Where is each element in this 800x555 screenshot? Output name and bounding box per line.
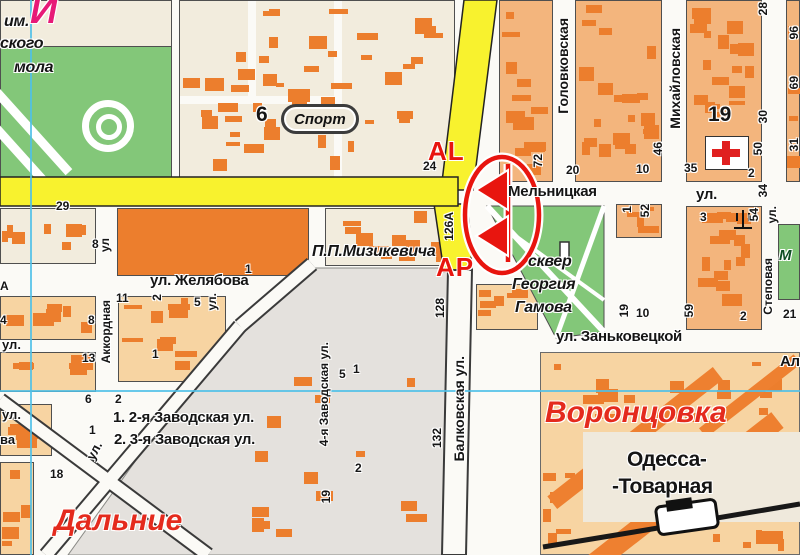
park-skver-line-3: Гамова — [515, 300, 572, 316]
house-number: 128 — [434, 298, 446, 318]
house-number: 1 — [621, 206, 633, 213]
street-melnitskaya: Мельницкая — [508, 184, 597, 199]
street-ul-small: ул. — [2, 408, 21, 421]
house-number: 31 — [788, 138, 800, 151]
house-number: 50 — [752, 142, 764, 155]
block-number-19: 19 — [708, 104, 731, 125]
park-skver-line-1: сквер — [528, 254, 571, 270]
house-number: 19 — [618, 304, 630, 317]
house-number: 11 — [116, 292, 129, 304]
park-name-line-1: им. — [4, 14, 29, 30]
street-al-cut: Ал — [780, 354, 800, 369]
marker-label-ar: АР — [436, 254, 474, 280]
street-zhelyabova: ул. Желябова — [150, 273, 248, 288]
street-mikhailovskaya: Михайловская — [668, 28, 682, 129]
house-number: 21 — [783, 308, 796, 320]
house-number: 46 — [652, 142, 664, 155]
park-name-line-2: ского — [0, 36, 43, 52]
street-akkordnaya: Аккордная — [100, 300, 112, 363]
house-number: 72 — [532, 154, 544, 167]
house-number: 5 — [194, 296, 201, 308]
house-number: 54 — [748, 208, 760, 221]
house-number: 30 — [757, 110, 769, 123]
street-golovkovskaya: Головковская — [556, 18, 570, 114]
district-letter: И — [30, 0, 57, 30]
house-number: 52 — [639, 204, 651, 217]
station-name-line-1: Одесса- — [627, 449, 706, 470]
house-number: 2 — [355, 462, 362, 474]
house-number: 1 — [89, 424, 96, 436]
stadium-number: 6 — [256, 104, 268, 125]
house-number: 96 — [788, 26, 800, 39]
house-number: 2 — [740, 310, 747, 322]
map-canvas: Спорт AL АР им.скогомолаИ6ГоловковскаяМи… — [0, 0, 800, 555]
house-number: 4 — [0, 314, 7, 326]
house-number: 34 — [757, 184, 769, 197]
house-number: 3 — [700, 211, 707, 223]
house-number: 13 — [82, 352, 95, 364]
street-balkovskaya: Балковская ул. — [452, 356, 466, 461]
street-ul-small: ул. — [206, 293, 218, 310]
house-number: 10 — [636, 163, 649, 175]
house-number: 2 — [748, 167, 755, 179]
house-number: 1 — [353, 363, 360, 375]
park-name-line-3: мола — [14, 60, 53, 76]
house-number: 2 — [151, 294, 163, 301]
house-number: 18 — [50, 468, 63, 480]
house-number: 8 — [88, 314, 95, 326]
park-skver-line-2: Георгия — [512, 277, 575, 293]
street-ul-small: ул. — [766, 206, 778, 223]
landmark-mizikevicha: П.П.Мизикевича — [312, 244, 435, 260]
house-number: 35 — [684, 162, 697, 174]
house-number: 29 — [56, 200, 69, 212]
house-number: 69 — [788, 76, 800, 89]
legend-line-2: 2. 3-я Заводская ул. — [114, 432, 255, 447]
street-edge-va: ва — [0, 433, 15, 446]
house-number: 2 — [115, 393, 122, 405]
house-number: 24 — [423, 160, 436, 172]
labels-layer: AL АР им.скогомолаИ6ГоловковскаяМихайлов… — [0, 0, 800, 555]
street-ul-small: ул — [99, 238, 111, 252]
street-edge-a: А — [0, 280, 9, 292]
house-number: 28 — [757, 2, 769, 15]
house-number: 6 — [85, 393, 92, 405]
street-melnitskaya-ul: ул. — [696, 187, 717, 202]
house-number: 20 — [566, 164, 579, 176]
street-4-zavodskaya: 4-я Заводская ул. — [318, 342, 330, 446]
park-letter-m: М — [779, 248, 792, 263]
house-number: 132 — [431, 428, 443, 448]
house-number: 19 — [320, 490, 332, 503]
house-number: 1 — [152, 348, 159, 360]
street-zankovetskoy: ул. Заньковецкой — [556, 329, 682, 344]
house-number: 126А — [443, 212, 455, 241]
street-ul-small: ул. — [2, 338, 21, 351]
street-ul-diagonal: ул. — [84, 439, 104, 462]
house-number: 10 — [636, 307, 649, 319]
district-dalnie: Дальние — [54, 506, 182, 536]
street-stepovaya: Степовая — [762, 258, 774, 315]
district-vorontsovka: Воронцовка — [545, 398, 727, 428]
station-name-line-2: -Товарная — [612, 476, 713, 497]
legend-line-1: 1. 2-я Заводская ул. — [113, 410, 254, 425]
house-number: 59 — [683, 304, 695, 317]
house-number: 5 — [339, 368, 346, 380]
